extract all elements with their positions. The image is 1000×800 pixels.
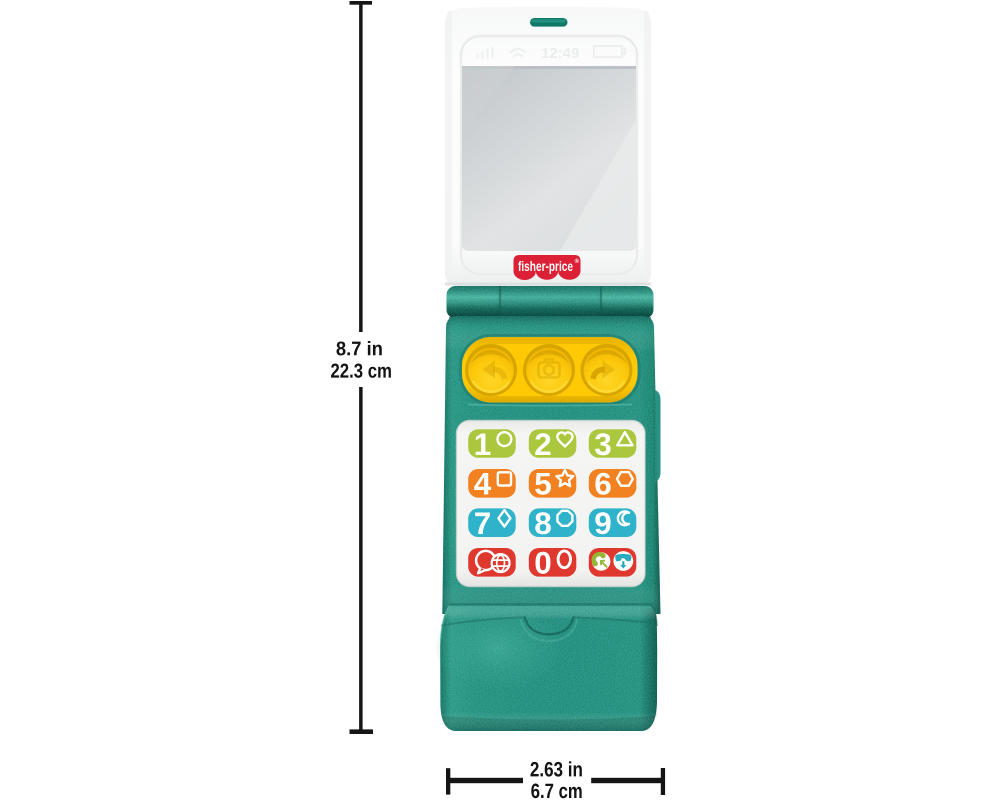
svg-text:12:49: 12:49 <box>541 45 579 62</box>
svg-text:3: 3 <box>594 426 612 462</box>
svg-text:0: 0 <box>534 545 552 581</box>
svg-text:1: 1 <box>474 426 492 462</box>
svg-text:fisher-price: fisher-price <box>518 259 573 274</box>
svg-text:5: 5 <box>534 466 552 502</box>
svg-text:6: 6 <box>594 466 612 502</box>
svg-text:7: 7 <box>474 505 492 541</box>
svg-text:8: 8 <box>534 505 552 541</box>
svg-text:®: ® <box>575 258 580 265</box>
svg-text:4: 4 <box>474 466 492 502</box>
svg-text:2: 2 <box>534 426 552 462</box>
svg-text:9: 9 <box>594 505 612 541</box>
